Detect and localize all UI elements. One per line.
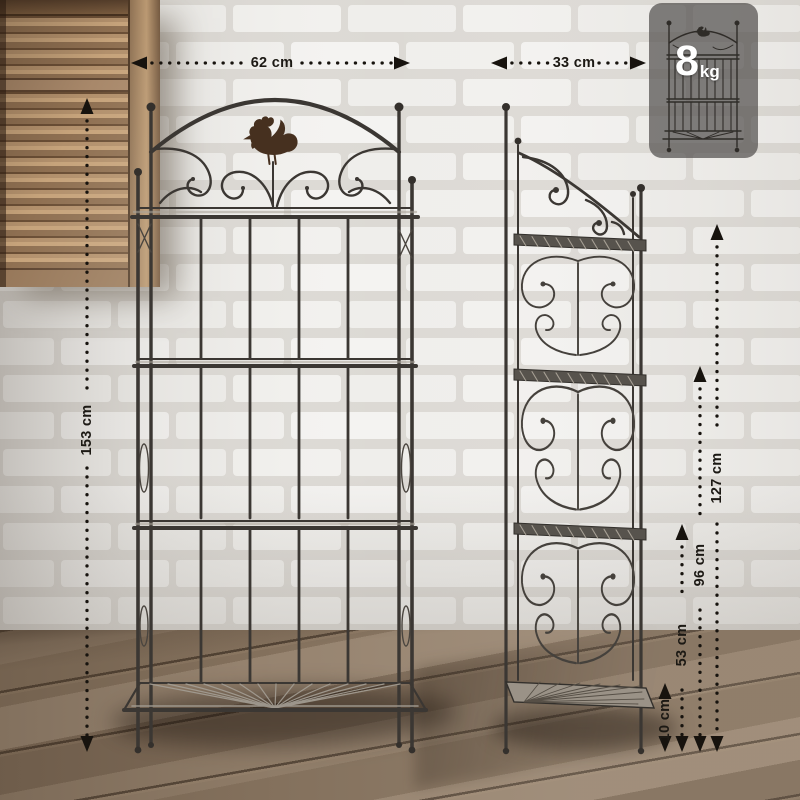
shelf-2	[134, 359, 416, 366]
heart-scroll-panel-2	[522, 387, 634, 510]
product-dimension-scene: 8 kg 62 cm 33 cm 153 cm 127 cm 96 cm 53 …	[0, 0, 800, 800]
weight-unit: kg	[700, 63, 720, 80]
side-finial-balls	[502, 103, 645, 754]
side-shelf-3	[514, 523, 646, 540]
crown-scrollwork	[155, 149, 273, 206]
shelf-1	[132, 208, 418, 217]
heart-scroll-panel-1	[522, 257, 634, 355]
bars-section-3	[201, 530, 348, 682]
weight-capacity-badge: 8 kg	[649, 3, 758, 158]
shelf-3	[134, 521, 416, 528]
bars-section-1	[201, 219, 348, 358]
shelf-4-fan	[124, 683, 426, 710]
rooster-icon	[245, 117, 298, 164]
side-shelf-1	[514, 234, 646, 251]
weight-value: 8	[675, 43, 699, 80]
crown-scrollwork-mirror	[277, 149, 395, 206]
bakers-rack-side-view	[488, 95, 660, 765]
weight-capacity-text: 8 kg	[675, 43, 720, 80]
side-shelf-2	[514, 369, 646, 386]
finial-balls	[134, 103, 416, 754]
bars-section-2	[201, 368, 348, 518]
dim-label-side-depth: 33 cm	[553, 55, 596, 71]
dim-label-shelf-2: 96 cm	[692, 544, 708, 587]
dim-label-shelf-3: 53 cm	[674, 624, 690, 667]
dim-label-shelf-top: 127 cm	[709, 453, 725, 504]
dim-label-shelf-bottom: 10 cm	[657, 699, 673, 742]
bakers-rack-front-view	[118, 80, 434, 765]
side-crown-scroll	[519, 153, 639, 237]
side-shelf-4-fan	[506, 682, 654, 708]
dim-label-total-height: 153 cm	[79, 405, 95, 456]
heart-scroll-panel-3	[522, 543, 634, 663]
dim-label-front-width: 62 cm	[251, 55, 294, 71]
